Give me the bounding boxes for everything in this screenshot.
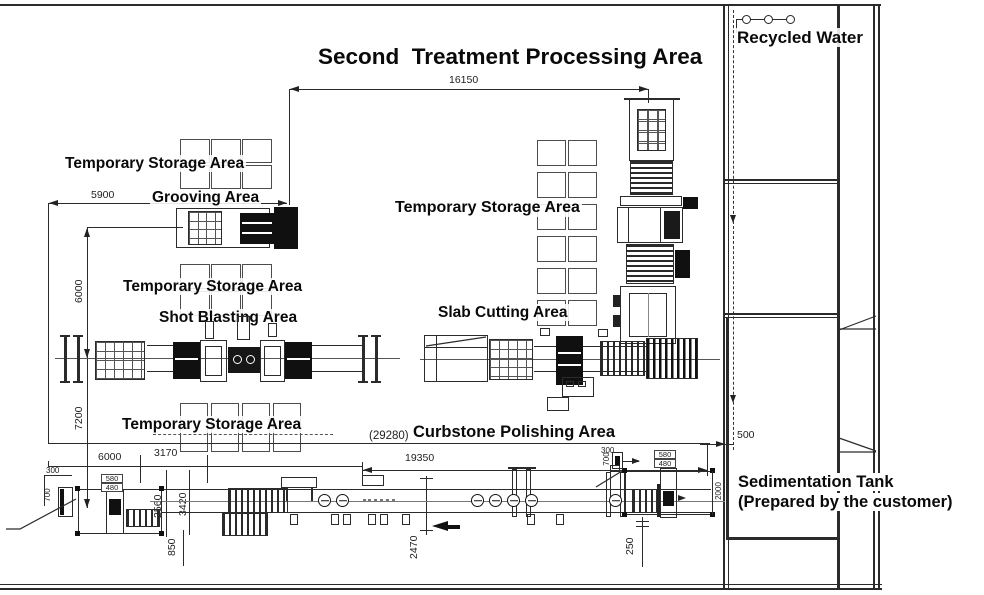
polish-roller-block-b xyxy=(222,513,268,536)
shot-pallet xyxy=(95,341,145,380)
cutter-flange xyxy=(620,196,682,206)
dim-text-7200v: 7200 xyxy=(74,398,85,438)
grooving-head-slit-2 xyxy=(242,232,272,234)
dim-text-480-right: 480 xyxy=(654,459,676,468)
bottom-border-inner-line xyxy=(0,584,882,585)
polish-foot-4 xyxy=(368,514,376,525)
dim-tick-207 xyxy=(207,455,208,483)
shot-top-fixture-2 xyxy=(237,316,250,340)
dim-250-tick-1 xyxy=(636,521,649,522)
dim-ext-16150-left xyxy=(289,89,290,205)
tank-divider-1 xyxy=(723,179,837,181)
storage-b-label: Temporary Storage Area xyxy=(121,278,304,295)
slab-roller-dark xyxy=(646,338,698,379)
cutter-mid-block xyxy=(664,211,680,239)
cutter-drum-1 xyxy=(630,161,673,195)
dim-text-850: 850 xyxy=(167,527,178,567)
dim-text-2470: 2470 xyxy=(409,527,420,567)
storage-cell xyxy=(568,172,597,198)
polish-head-4 xyxy=(489,494,502,507)
top-border-line xyxy=(0,4,881,6)
shot-blasting-label: Shot Blasting Area xyxy=(157,309,299,326)
cutter-side-motor xyxy=(683,197,698,209)
grooving-head-slit-1 xyxy=(242,222,272,224)
dim-line-16150 xyxy=(290,89,648,90)
polish-foot-6 xyxy=(402,514,410,525)
slab-lower-attach-dot2 xyxy=(578,381,586,387)
polish-head-1 xyxy=(318,494,331,507)
polish-foot-3 xyxy=(343,514,351,525)
storage-a-label: Temporary Storage Area xyxy=(63,155,246,172)
slab-left-platform-line xyxy=(424,347,488,348)
right-end-post-block xyxy=(615,456,620,465)
slab-left-platform-vline xyxy=(436,335,437,382)
shot-section-white-2-inner xyxy=(264,346,281,376)
dim-arrow-5900-right xyxy=(278,200,287,206)
grooving-machine-motor xyxy=(274,207,298,249)
cutter-lower-centerline xyxy=(648,293,649,337)
polish-foot-2 xyxy=(331,514,339,525)
dim-2470-tick-top xyxy=(420,478,433,479)
sedimentation-label-line2: (Prepared by the customer) xyxy=(736,493,955,511)
tank-divider-2 xyxy=(723,313,837,315)
polish-bracket-1 xyxy=(281,477,317,488)
dim-text-3420: 3420 xyxy=(178,484,189,524)
curbstone-label: Curbstone Polishing Area xyxy=(411,423,617,441)
page-title: Second Treatment Processing Area xyxy=(316,44,704,69)
polish-post-1b xyxy=(311,488,313,501)
slab-roller-light xyxy=(600,341,645,376)
dim-text-580-left: 580 xyxy=(101,474,123,483)
polish-post-2a xyxy=(512,469,517,517)
pump-circle-3 xyxy=(786,15,795,24)
grooving-centerline xyxy=(87,227,183,228)
cutter-mid-line-2 xyxy=(660,207,661,243)
dim-line-6000v xyxy=(87,228,88,358)
node-sq-1 xyxy=(75,486,80,491)
polish-head-3 xyxy=(471,494,484,507)
recycled-water-label: Recycled Water xyxy=(735,28,865,47)
shot-ibeam-l2 xyxy=(77,336,80,383)
dim-text-29280: (29280) xyxy=(368,431,410,443)
polish-bracket-2 xyxy=(362,475,384,486)
dim-text-19350: 19350 xyxy=(404,453,435,464)
storage-cell xyxy=(537,140,566,166)
polish-post-2b xyxy=(526,469,531,517)
polish-left-roller xyxy=(126,509,160,527)
dim-tick-140 xyxy=(140,455,141,483)
storage-cell xyxy=(537,236,566,262)
cutter-drum-2-motor xyxy=(675,250,690,278)
shot-chamber-right-slit xyxy=(287,358,310,360)
polish-head-2 xyxy=(336,494,349,507)
slab-cutting-label: Slab Cutting Area xyxy=(436,304,569,321)
tank-divider-2b xyxy=(723,317,837,318)
storage-cell xyxy=(537,268,566,294)
pump-circle-2 xyxy=(764,15,773,24)
shot-ibeam-r2-bot xyxy=(371,381,381,383)
storage-cell xyxy=(242,139,272,163)
polish-roller-block-a xyxy=(228,488,288,513)
flow-direction-arrow-tail xyxy=(448,525,460,529)
floor-plan-drawing: Second Treatment Processing Area 16150 R… xyxy=(0,0,984,595)
slab-saw-slit-2 xyxy=(558,364,581,366)
cutter-drum-2 xyxy=(626,244,674,284)
slab-saw-slit-1 xyxy=(558,352,581,354)
dim-arrow-19350-left xyxy=(363,467,372,473)
dim-text-580-right: 580 xyxy=(654,450,676,459)
polish-head-7 xyxy=(609,494,622,507)
polish-foot-8 xyxy=(556,514,564,525)
dim-line-850 xyxy=(183,530,184,566)
dim-text-6000v: 6000 xyxy=(74,271,85,311)
dim-arrow-6000-down xyxy=(84,349,90,358)
node-sq-2 xyxy=(159,486,164,491)
dim-arrow-300-right xyxy=(632,458,640,464)
tank-wall-left-outer xyxy=(723,4,725,590)
cutter-left-tab-1 xyxy=(613,295,620,307)
storage-d-hidden-line xyxy=(153,434,333,435)
dim-text-500: 500 xyxy=(736,430,756,441)
dim-line-250 xyxy=(642,517,643,567)
slab-lower-attach xyxy=(562,377,594,397)
shot-chamber-right xyxy=(285,342,312,379)
shot-ibeam-r2-top xyxy=(371,335,381,337)
shot-ibeam-r1-top xyxy=(358,335,368,337)
polish-post-3a xyxy=(606,472,611,517)
grooving-machine-head xyxy=(240,213,274,244)
cutter-top-grid xyxy=(637,109,666,151)
sedimentation-tank-bottom xyxy=(726,537,838,540)
dim-text-700-left: 700 xyxy=(44,480,52,510)
polish-head-6 xyxy=(525,494,538,507)
storage-cell xyxy=(537,172,566,198)
polish-right-node-rect xyxy=(625,471,713,515)
storage-cell xyxy=(242,165,272,189)
shot-top-fixture-1 xyxy=(205,321,214,339)
polish-foot-1 xyxy=(290,514,298,525)
shot-top-fixture-3 xyxy=(268,323,277,337)
dim-arrow-5900-left xyxy=(49,200,58,206)
sedimentation-tank-left-wall xyxy=(726,318,729,540)
pump-circle-1 xyxy=(742,15,751,24)
flow-direction-arrow xyxy=(432,521,448,531)
polish-spec-scribble xyxy=(363,499,395,502)
node-sq-3 xyxy=(75,531,80,536)
dim-arrow-16150-left xyxy=(290,86,299,92)
flow-dashed-line xyxy=(733,10,734,450)
shot-ibeam-l1-top xyxy=(60,335,70,337)
dim-arrow-6000-up xyxy=(84,228,90,237)
shot-ibeam-l2-top xyxy=(73,335,83,337)
dim-text-2000: 2000 xyxy=(715,475,723,507)
dim-line-2000 xyxy=(712,471,713,515)
dim-line-300-left xyxy=(44,475,72,476)
shot-ibeam-l1-bot xyxy=(60,381,70,383)
node-sq-7 xyxy=(622,512,627,517)
cutter-left-tab-2 xyxy=(613,315,620,327)
dim-text-5900: 5900 xyxy=(90,190,115,201)
dim-text-480-left: 480 xyxy=(101,483,123,492)
dim-250-tick-2 xyxy=(636,526,649,527)
storage-cell xyxy=(568,236,597,262)
dim-ext-left-outer xyxy=(48,203,49,444)
dim-arrow-16150-right xyxy=(639,86,648,92)
dim-line-7200v xyxy=(87,358,88,508)
shot-ibeam-r1-bot xyxy=(358,381,368,383)
shot-ibeam-r2 xyxy=(375,336,378,383)
storage-cell xyxy=(568,140,597,166)
flow-arrow-down-1 xyxy=(730,215,736,223)
storage-grid-c xyxy=(537,140,597,326)
slab-lower-box xyxy=(547,397,569,411)
shot-ibeam-l1 xyxy=(64,336,67,383)
dim-line-3420 xyxy=(189,470,190,535)
shot-ibeam-r1 xyxy=(362,336,365,383)
shot-chamber-left-slit xyxy=(175,358,198,360)
bottom-border-line xyxy=(0,588,882,590)
shot-center-dial-1 xyxy=(233,355,242,364)
dim-line-2470 xyxy=(426,476,427,535)
cutter-mid-line-1 xyxy=(628,207,629,243)
sedimentation-label-line1: Sedimentation Tank xyxy=(736,473,896,491)
grooving-label: Grooving Area xyxy=(150,189,261,206)
polish-left-unit-block xyxy=(60,489,64,515)
shot-rail-r-top xyxy=(312,345,362,346)
shot-center-dial-2 xyxy=(246,355,255,364)
dim-text-700-right: 700 xyxy=(603,444,611,474)
shot-rail-l-top xyxy=(147,345,175,346)
shot-ibeam-l2-bot xyxy=(73,381,83,383)
weir-upper-diagonal xyxy=(839,316,876,330)
shot-rail-r-bot xyxy=(312,371,362,372)
shot-chamber-left xyxy=(173,342,200,379)
slab-pallet xyxy=(489,339,533,380)
storage-c-label: Temporary Storage Area xyxy=(393,199,582,217)
slab-top-fixture-2 xyxy=(598,329,608,337)
dim-text-16150: 16150 xyxy=(448,75,479,86)
storage-cell xyxy=(568,300,597,326)
slab-top-fixture-1 xyxy=(540,328,550,336)
grooving-pallet xyxy=(188,211,222,245)
dim-text-300-left: 300 xyxy=(45,467,60,475)
weir-lower-diagonal xyxy=(839,438,876,451)
slab-left-platform xyxy=(424,335,488,382)
dim-text-3170: 3170 xyxy=(153,448,178,459)
storage-cell xyxy=(568,268,597,294)
shot-section-white-1-inner xyxy=(205,346,222,376)
polish-foot-5 xyxy=(380,514,388,525)
tank-divider-1b xyxy=(723,183,837,184)
dim-line-bottom-left xyxy=(49,466,363,467)
polish-head-5 xyxy=(507,494,520,507)
dim-arrow-500 xyxy=(716,441,725,447)
storage-d-label: Temporary Storage Area xyxy=(120,416,303,433)
dim-text-250: 250 xyxy=(625,526,636,566)
dim-text-6000b: 6000 xyxy=(97,452,122,463)
polish-left-elevator-block xyxy=(109,499,121,515)
flow-arrow-down-2 xyxy=(730,395,736,403)
shot-rail-l-bot xyxy=(147,371,175,372)
node-sq-4 xyxy=(159,531,164,536)
polish-post-1a xyxy=(286,488,288,501)
slab-lower-attach-dot1 xyxy=(566,381,574,387)
